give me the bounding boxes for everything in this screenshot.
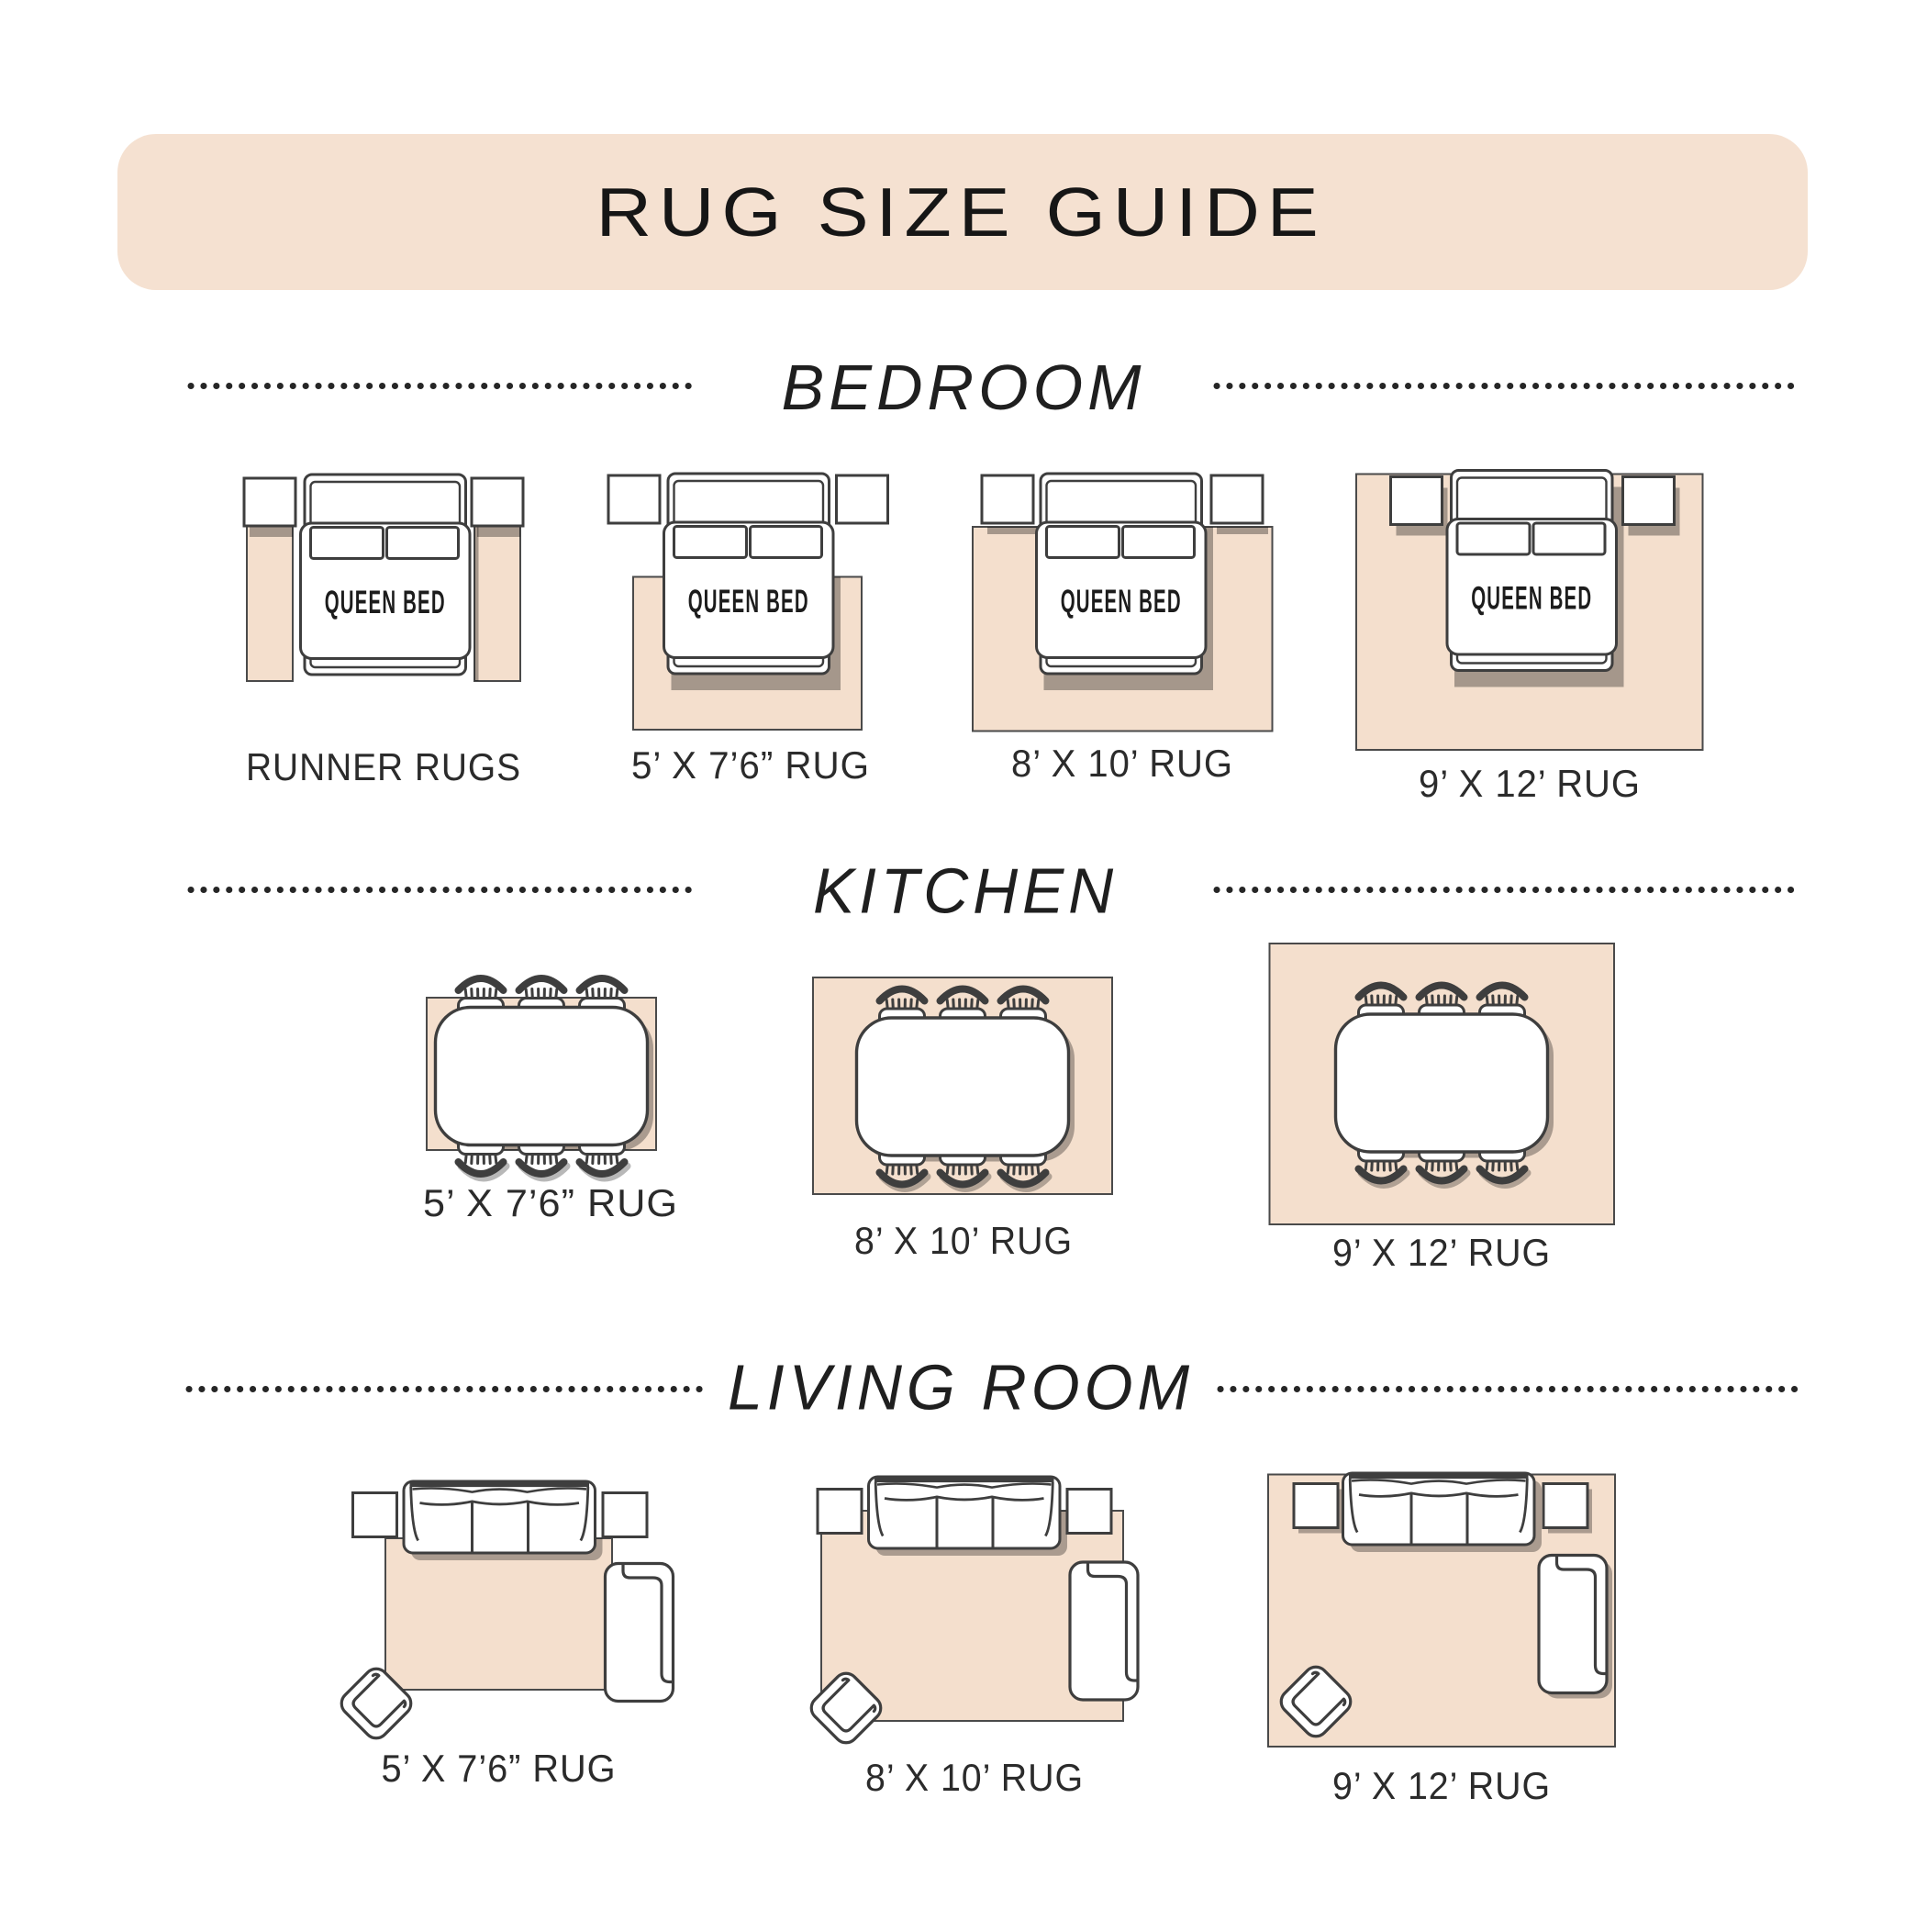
svg-text:9’ X 12’ RUG: 9’ X 12’ RUG <box>1332 1231 1551 1274</box>
svg-text:5’ X 7’6” RUG: 5’ X 7’6” RUG <box>423 1181 678 1224</box>
svg-text:LIVING ROOM: LIVING ROOM <box>728 1352 1194 1424</box>
svg-text:9’ X 12’ RUG: 9’ X 12’ RUG <box>1332 1764 1551 1807</box>
svg-text:8’ X 10’ RUG: 8’ X 10’ RUG <box>854 1219 1073 1262</box>
svg-text:5’ X 7’6” RUG: 5’ X 7’6” RUG <box>631 743 870 787</box>
svg-text:9’ X 12’ RUG: 9’ X 12’ RUG <box>1419 762 1641 805</box>
svg-text:5’ X 7’6” RUG: 5’ X 7’6” RUG <box>382 1747 617 1790</box>
svg-text:8’ X 10’ RUG: 8’ X 10’ RUG <box>1011 742 1233 785</box>
svg-text:RUG SIZE GUIDE: RUG SIZE GUIDE <box>596 173 1326 251</box>
svg-text:BEDROOM: BEDROOM <box>782 352 1146 423</box>
svg-text:RUNNER RUGS: RUNNER RUGS <box>246 745 521 788</box>
svg-text:KITCHEN: KITCHEN <box>813 855 1118 927</box>
svg-text:8’ X 10’ RUG: 8’ X 10’ RUG <box>865 1756 1084 1799</box>
